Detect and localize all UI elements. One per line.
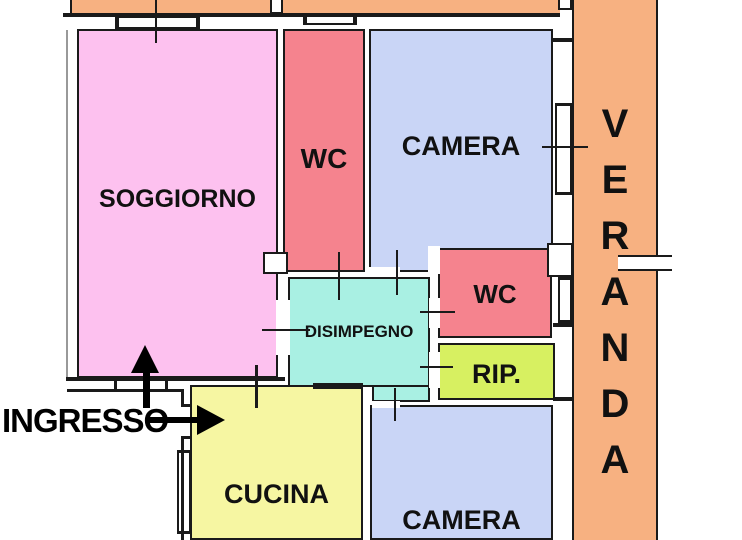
wall-block-wc: [547, 243, 573, 277]
floor-plan: SOGGIORNO WC CAMERA DISIMPEGNO WC RIP. C…: [0, 0, 742, 540]
window-soggiorno-icon: [115, 16, 200, 29]
room-disimpegno: DISIMPEGNO: [288, 277, 430, 387]
top-exterior-wall: [63, 13, 560, 17]
door-marker-cucina: [255, 365, 258, 408]
veranda-letter: D: [574, 376, 656, 432]
veranda-letter: E: [574, 152, 656, 208]
door-marker-rip: [420, 366, 453, 368]
room-ripostiglio-label: RIP.: [440, 359, 553, 390]
dimension-line: [155, 0, 157, 43]
entry-side-wall-lower: [181, 437, 184, 540]
wall-joint-1: [114, 377, 117, 390]
veranda-opening: [618, 255, 672, 271]
wall-gap-camera-wc: [428, 246, 440, 274]
room-wc-middle: WC: [438, 248, 552, 338]
entry-door-jamb-top: [181, 404, 191, 407]
room-wc-middle-label: WC: [440, 279, 550, 310]
door-gap-rip: [429, 352, 440, 388]
room-camera-top: CAMERA: [369, 29, 553, 272]
veranda-letter: N: [574, 320, 656, 376]
window-cucina-icon: [177, 450, 191, 534]
cucina-door-leaf: [313, 383, 363, 389]
room-soggiorno: SOGGIORNO: [77, 29, 278, 378]
room-wc-top-label: WC: [285, 143, 363, 175]
door-block-soggiorno: [263, 252, 288, 274]
door-gap-wc-middle: [429, 298, 440, 328]
room-soggiorno-label: SOGGIORNO: [79, 185, 276, 214]
door-marker-camera-bottom: [394, 388, 396, 421]
entrance-arrow-up-icon: [131, 345, 159, 373]
room-wc-top: WC: [283, 29, 365, 272]
room-veranda-label: V E R A N D A: [574, 96, 656, 488]
room-disimpegno-label: DISIMPEGNO: [290, 322, 428, 342]
room-camera-bottom: CAMERA: [370, 405, 553, 540]
wall-joint-2: [165, 377, 168, 390]
room-ripostiglio: RIP.: [438, 343, 555, 400]
balcony-pillar: [270, 0, 283, 14]
veranda-link-wall: [551, 38, 572, 42]
veranda-letter: A: [574, 432, 656, 488]
window-camera-top-tick: [542, 146, 588, 148]
veranda-letter: V: [574, 96, 656, 152]
entrance-arrow-up-shaft: [143, 371, 150, 408]
window-wc-middle-icon: [558, 277, 572, 323]
balcony-veranda-joint: [558, 0, 572, 10]
window-camera-top-icon: [555, 103, 572, 195]
room-cucina-label: CUCINA: [192, 479, 361, 510]
entrance-arrow-right-shaft: [148, 417, 200, 423]
stub-wall-2: [553, 397, 572, 401]
room-camera-top-label: CAMERA: [371, 131, 551, 162]
door-marker-wc-middle: [420, 311, 455, 313]
soggiorno-bottom-wall: [66, 377, 285, 381]
door-gap-soggiorno: [276, 300, 290, 355]
stub-wall-1: [553, 323, 572, 327]
room-camera-bottom-label: CAMERA: [372, 505, 551, 536]
entrance-arrow-right-icon: [197, 405, 225, 435]
veranda-letter: A: [574, 264, 656, 320]
door-marker-soggiorno: [262, 329, 310, 331]
door-marker-camera-top: [396, 250, 398, 295]
left-exterior-line: [66, 30, 68, 380]
balcony-strip: [70, 0, 560, 14]
door-marker-wc-top: [338, 252, 340, 300]
